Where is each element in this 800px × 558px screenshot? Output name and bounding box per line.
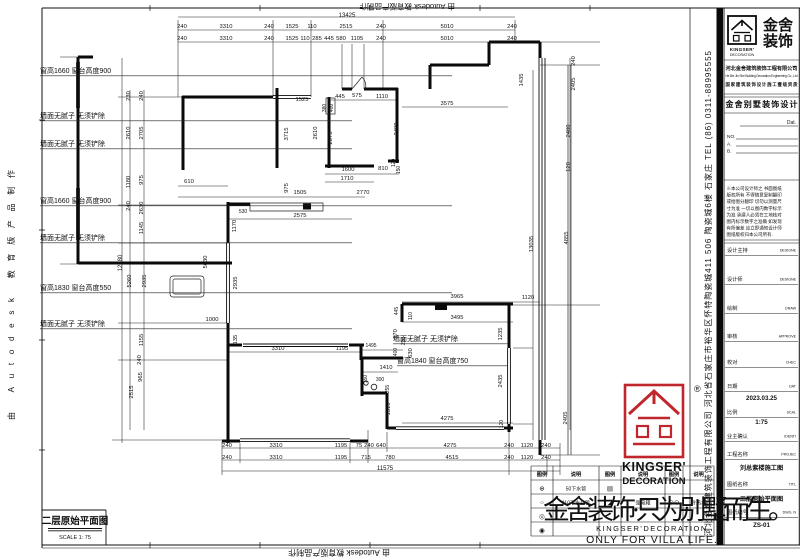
dim-label: 120 bbox=[499, 420, 505, 429]
dim-label: 240 bbox=[541, 455, 551, 461]
dim-label: 3965 bbox=[451, 294, 464, 300]
dim-label: 445 bbox=[335, 94, 345, 100]
dim-label: 3310 bbox=[272, 346, 285, 352]
dim-label: 1135 bbox=[233, 335, 239, 347]
logo-cn-line1: 金舍 bbox=[762, 16, 794, 34]
dim-label: 240 bbox=[507, 24, 517, 30]
dim-label: 2435 bbox=[498, 375, 504, 388]
dim-label: 240 bbox=[264, 24, 274, 30]
dim-label: 715 bbox=[361, 455, 371, 461]
floor-plan-walls bbox=[78, 42, 540, 455]
field-label-en: PROJEC bbox=[781, 453, 796, 457]
dim-label: 965 bbox=[138, 372, 144, 382]
field-label-en: DRAW bbox=[785, 307, 796, 311]
dim-label: 1525 bbox=[296, 97, 309, 103]
dim-label: 3310 bbox=[270, 455, 283, 461]
dim-label: 240 bbox=[139, 91, 145, 101]
legend-symbol: ▤ bbox=[607, 486, 613, 493]
dim-label: 2935 bbox=[233, 277, 239, 290]
dim-label: 810 bbox=[378, 166, 388, 172]
dim-label: 1110 bbox=[376, 94, 388, 100]
field-label-en: SCAL bbox=[787, 411, 796, 415]
drawing-scale: SCALE 1: 75 bbox=[59, 535, 91, 541]
dim-label: 300 bbox=[376, 377, 385, 383]
company-name-en: He Bei Jin She Building Decoration Engin… bbox=[726, 74, 798, 78]
dim-label: 1495 bbox=[365, 343, 376, 349]
notice-line: 寸为准 一切以图内数字标示 bbox=[727, 205, 783, 212]
dim-label: 1120 bbox=[521, 443, 533, 449]
dim-label: 1170 bbox=[232, 220, 238, 232]
dim-label: 380 bbox=[322, 104, 328, 113]
dim-label: 2405 bbox=[563, 412, 569, 425]
dim-label: 240 bbox=[376, 24, 386, 30]
dim-label: 110 bbox=[307, 24, 316, 30]
dim-label: 5260 bbox=[127, 275, 133, 288]
dim-label: 1435 bbox=[519, 74, 525, 87]
notice-line: 图内标示数字之准确 如发现 bbox=[727, 218, 783, 225]
field-label-en: DAT bbox=[789, 385, 797, 389]
dim-label: 150 bbox=[396, 166, 402, 175]
autodesk-watermark-left: 由 Autodesk 教育版产品制作 bbox=[6, 170, 16, 420]
dim-label: 75 bbox=[356, 443, 362, 449]
company-name: 河北金舍建筑装饰工程有限公司 bbox=[726, 64, 798, 72]
field-label: 比例 bbox=[727, 408, 737, 416]
dim-label: 4275 bbox=[441, 416, 454, 422]
dim-label: 4855 bbox=[564, 232, 570, 245]
dim-label: 1410 bbox=[380, 365, 393, 371]
dim-label: 400 bbox=[329, 104, 335, 113]
dat-label: Dat. bbox=[787, 120, 796, 126]
dim-label: 2610 bbox=[313, 127, 319, 140]
dim-label: 5630 bbox=[203, 256, 209, 269]
window-lines bbox=[77, 58, 545, 442]
annotation-text: 墙面无腻子 无须铲除 bbox=[40, 319, 105, 328]
dim-label: 230 bbox=[126, 91, 132, 101]
field-value: 2023.03.25 bbox=[746, 395, 778, 402]
dim-label: 1600 bbox=[342, 167, 355, 173]
field-label-en: CHEC bbox=[786, 361, 797, 365]
dim-label: 610 bbox=[184, 179, 194, 185]
dim-label: 240 bbox=[264, 36, 274, 42]
dim-label: 2770 bbox=[357, 190, 370, 196]
dim-label: 1525 bbox=[286, 36, 299, 42]
registered-mark: ® bbox=[694, 384, 701, 394]
autodesk-watermark-bottom: 由 Autodesk 教育版产品制作 bbox=[288, 548, 390, 558]
notice-paragraph: ※本公司设计师之 书面图纸版权所有 不得随意复制翻印或给图分翻印 切勿以测量尺寸… bbox=[727, 185, 783, 238]
field-label-en: TITL bbox=[789, 483, 796, 487]
dim-label: 1235 bbox=[498, 328, 504, 341]
dim-label: 580 bbox=[336, 36, 346, 42]
annotation-text: 墙面无腻子 无须铲除 bbox=[40, 233, 105, 242]
legend-symbol: ◉ bbox=[539, 528, 545, 535]
dim-label: 150 bbox=[363, 375, 369, 384]
solid-fills bbox=[303, 204, 447, 311]
dim-label: 1120 bbox=[521, 455, 533, 461]
legend-desc: 50下水管 bbox=[566, 486, 587, 493]
legend-symbol: ⊕ bbox=[539, 486, 545, 493]
dim-label: 1195 bbox=[335, 455, 347, 461]
watermark-en-line1: KINGSER'DECORATION bbox=[596, 524, 708, 533]
company-address-vertical: 河北金舍建筑装饰工程有限公司 河北省石家庄市裕华区怀特陶瓷城411 506 陶瓷… bbox=[703, 50, 713, 536]
notice-line: 有所偏差 应立即通知设计师 bbox=[727, 225, 783, 232]
dim-label: 400 bbox=[393, 348, 399, 357]
notice-line: 图纸版权归本公司所有. bbox=[727, 231, 773, 238]
annotation-text: 窗高1660 窗台高度900 bbox=[40, 196, 111, 205]
dim-label: 3310 bbox=[220, 24, 233, 30]
kingser-logo-small bbox=[728, 16, 756, 44]
watermark-en-line2: ONLY FOR VILLA LIFE. bbox=[586, 534, 718, 546]
autodesk-watermark-top: 由 Autodesk 教育版产品制作 bbox=[359, 2, 455, 12]
dim-label: 1180 bbox=[126, 176, 132, 188]
field-value: 1:75 bbox=[755, 419, 768, 426]
field-label-en: APPROVE bbox=[779, 335, 797, 339]
annotation-text: 窗高1660 窗台高度900 bbox=[40, 66, 111, 75]
kingser-red-logo: KINGSER' DECORATION ® bbox=[622, 384, 701, 487]
field-label: 业主确认 bbox=[727, 432, 749, 440]
dim-label: 4515 bbox=[446, 455, 459, 461]
dim-label: 1155 bbox=[139, 334, 145, 346]
dim-label: 1310 bbox=[386, 403, 392, 416]
plan-annotations: 窗高1660 窗台高度900墙面无腻子 无须铲除墙面无腻子 无须铲除窗高1660… bbox=[40, 66, 508, 366]
dim-label: 1195 bbox=[336, 346, 348, 352]
dim-label: 975 bbox=[284, 183, 290, 193]
watermark-slogan: 金舍装饰·只为别墅而生。 bbox=[543, 495, 795, 525]
dim-label: 630 bbox=[408, 348, 414, 358]
dim-label: 240 bbox=[364, 443, 374, 449]
title-block: KINGSER' DECORATION 金舍 装饰 河北金舍建筑装饰工程有限公司… bbox=[724, 8, 799, 545]
annotation-text: 墙面无腻子 无须铲除 bbox=[393, 334, 458, 343]
dim-label: 2405 bbox=[571, 78, 577, 91]
dim-label: 1505 bbox=[294, 190, 307, 196]
dim-label: 285 bbox=[312, 36, 322, 42]
annotation-text: 墙面无腻子 无须铲除 bbox=[40, 139, 105, 148]
dim-label: 1525 bbox=[286, 24, 299, 30]
company-qualification: 国家建筑装饰设计施工壹级资质 bbox=[726, 81, 799, 88]
notice-line: 或给图分翻印 切勿以测量尺 bbox=[727, 198, 783, 205]
field-label-en: IDENTI bbox=[784, 435, 796, 439]
titleblock-fields: 设计主持DESIGNE设计师DESIGNE绘制DRAW审核APPROVE校对CH… bbox=[725, 246, 798, 529]
notice-line: ※本公司设计师之 书面图纸 bbox=[727, 185, 783, 192]
field-label: 工程名称 bbox=[727, 450, 748, 458]
dim-label: 780 bbox=[385, 455, 395, 461]
dim-label: 2515 bbox=[129, 386, 135, 399]
dim-label: 445 bbox=[324, 36, 334, 42]
rail-bar bbox=[250, 203, 323, 211]
dim-label: 13035 bbox=[529, 236, 535, 252]
dim-label: 110 bbox=[408, 312, 414, 320]
dim-label: 13425 bbox=[339, 13, 356, 19]
dim-label: 240 bbox=[571, 56, 577, 66]
field-label: 设计师 bbox=[727, 275, 743, 283]
field-label-en: DESIGNE bbox=[780, 249, 797, 253]
drawing-title: 二层原始平面图 bbox=[42, 515, 109, 527]
annotation-text: 窗高1830 窗台高度550 bbox=[40, 283, 111, 292]
dim-label: 240 bbox=[222, 455, 232, 461]
logo-cn-line2: 装饰 bbox=[762, 32, 793, 50]
dim-label: 240 bbox=[177, 36, 187, 42]
dim-label: 240 bbox=[541, 443, 551, 449]
field-label: 日期 bbox=[727, 383, 737, 390]
drawing-title-box: 二层原始平面图 SCALE 1: 75 bbox=[42, 510, 109, 545]
annotation-text: 窗高1840 窗台高度750 bbox=[397, 356, 468, 365]
red-logo-decoration-text: DECORATION bbox=[622, 476, 685, 487]
dim-label: 3310 bbox=[270, 443, 283, 449]
red-logo-kingser-text: KINGSER' bbox=[622, 460, 686, 474]
titleblock-divider-bar bbox=[717, 8, 724, 545]
legend-header: 图例 bbox=[537, 470, 548, 478]
cad-drawing-page: { "meta": { "autodesk_left": "由 Autodesk… bbox=[0, 0, 800, 558]
dim-label: 640 bbox=[376, 443, 386, 449]
annotation-text: 墙面无腻子 无须铲除 bbox=[40, 111, 105, 120]
dim-label: 4275 bbox=[444, 443, 457, 449]
dim-label: 120 bbox=[566, 162, 572, 172]
notice-line: 为准 承建人必须在工地核对 bbox=[727, 211, 783, 218]
field-label: 校对 bbox=[727, 358, 737, 366]
dim-label: 2630 bbox=[139, 202, 145, 215]
a-label: A. bbox=[727, 142, 732, 148]
field-label-en: DESIGNE bbox=[780, 278, 797, 282]
field-label: 图纸名称 bbox=[727, 480, 748, 488]
dim-label: 240 bbox=[504, 443, 514, 449]
dim-label: 530 bbox=[239, 209, 248, 215]
dim-label: 2075 bbox=[328, 132, 334, 145]
dim-label: 1105 bbox=[351, 36, 363, 42]
dim-label: 2705 bbox=[139, 127, 145, 140]
field-label: 审核 bbox=[727, 332, 737, 340]
dim-label: 3310 bbox=[220, 36, 233, 42]
dim-label: 240 bbox=[222, 443, 232, 449]
dim-label: 240 bbox=[507, 36, 517, 42]
dim-label: 110 bbox=[300, 36, 309, 42]
dim-label: 2610 bbox=[126, 127, 132, 140]
dim-label: 2575 bbox=[294, 213, 307, 219]
field-label: 绘制 bbox=[727, 304, 737, 312]
dim-label: 240 bbox=[177, 24, 187, 30]
dim-label: 3715 bbox=[284, 128, 290, 141]
dim-label: 1710 bbox=[341, 176, 354, 182]
floor-plan-canvas: 由 Autodesk 教育版产品制作 由 Autodesk 教育版产品制作 由 … bbox=[0, 0, 800, 558]
field-label: 设计主持 bbox=[727, 246, 748, 254]
b-label: B. bbox=[727, 149, 732, 155]
field-value: 刘总紫楼施工图 bbox=[740, 464, 783, 472]
dim-label: 11575 bbox=[377, 466, 394, 472]
dim-label: 240 bbox=[137, 355, 143, 365]
dim-label: 5010 bbox=[441, 36, 454, 42]
dim-label: 1120 bbox=[522, 295, 534, 301]
dim-label: 3575 bbox=[441, 101, 454, 107]
legend-header: 说明 bbox=[693, 470, 704, 478]
logo-decoration-text: DECORATION bbox=[730, 53, 755, 57]
legend-header: 图例 bbox=[605, 470, 616, 478]
dim-label: 1000 bbox=[206, 317, 219, 323]
notice-line: 版权所有 不得随意复制翻印 bbox=[727, 192, 783, 199]
dim-label: 445 bbox=[394, 307, 400, 316]
dim-label: 12280 bbox=[118, 254, 124, 271]
no-label: NO. bbox=[727, 134, 736, 140]
logo-kingser-text: KINGSER' bbox=[730, 47, 754, 52]
dim-label: 255 bbox=[385, 385, 391, 394]
dim-label: 5010 bbox=[441, 24, 454, 30]
dim-label: 1195 bbox=[335, 443, 347, 449]
product-title: 金舍别墅装饰设计 bbox=[725, 99, 798, 109]
dim-label: 975 bbox=[139, 175, 145, 185]
dim-label: 2480 bbox=[394, 123, 400, 136]
dim-label: 240 bbox=[504, 455, 514, 461]
dim-label: 2515 bbox=[340, 24, 353, 30]
legend-header: 说明 bbox=[571, 470, 582, 478]
dim-label: 3495 bbox=[451, 315, 464, 321]
dim-label: 2935 bbox=[142, 275, 148, 288]
dim-label: 2480 bbox=[566, 125, 572, 138]
dim-label: 575 bbox=[352, 93, 362, 99]
dim-label: 1145 bbox=[139, 222, 145, 234]
dim-label: 240 bbox=[376, 36, 386, 42]
